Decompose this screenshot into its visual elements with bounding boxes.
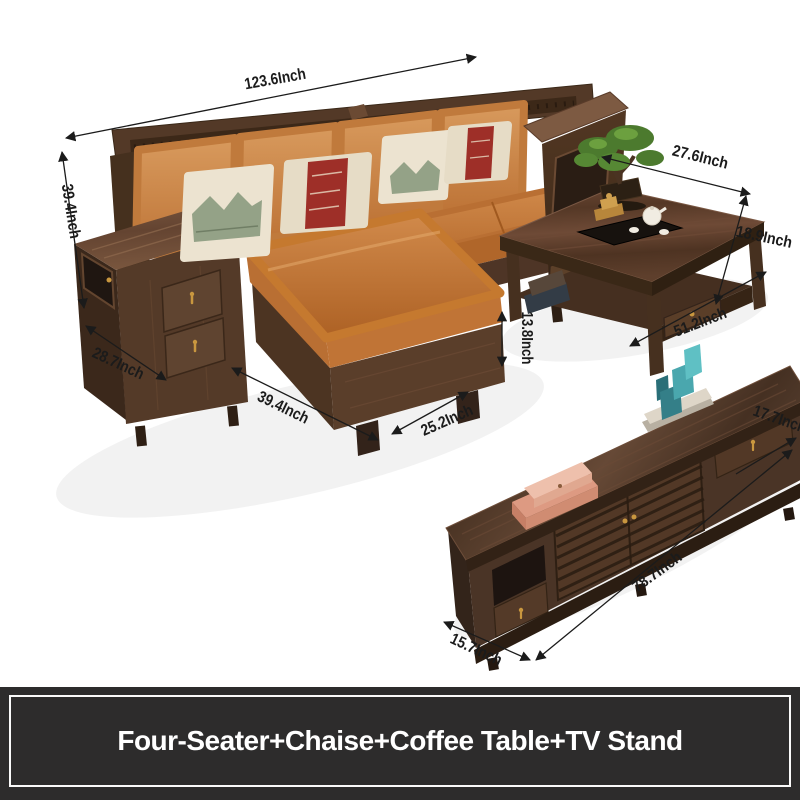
product-image: 123.6Inch 39.4Inch 28.7Inch 39.4Inch 25.… bbox=[0, 0, 800, 800]
tv-stand-foot bbox=[788, 508, 790, 520]
dim-label-shelf-clearance: 13.8Inch bbox=[518, 312, 535, 365]
teapot-lid bbox=[650, 206, 654, 210]
box-clasp bbox=[558, 484, 562, 488]
bonsai-foliage bbox=[574, 153, 598, 167]
gold-ornament-finial bbox=[606, 193, 612, 199]
dim-label-sofa-height: 39.4Inch bbox=[58, 183, 83, 240]
brass-handle bbox=[632, 515, 637, 520]
tea-cup bbox=[659, 229, 669, 235]
tea-cup bbox=[629, 227, 639, 233]
sofa-leg bbox=[140, 426, 142, 446]
bonsai-foliage bbox=[636, 150, 664, 166]
bonsai-foliage-highlight bbox=[589, 139, 607, 149]
sculpture-block bbox=[684, 344, 702, 380]
brass-stud bbox=[107, 278, 112, 283]
bonsai-foliage-highlight bbox=[614, 128, 638, 140]
product-caption: Four-Seater+Chaise+Coffee Table+TV Stand bbox=[117, 725, 682, 757]
caption-bar: Four-Seater+Chaise+Coffee Table+TV Stand bbox=[0, 687, 800, 800]
bonsai-foliage bbox=[598, 153, 630, 171]
pillow-red-band bbox=[465, 126, 494, 180]
brass-handle bbox=[623, 519, 628, 524]
dim-label-table-depth: 27.6Inch bbox=[670, 142, 729, 172]
dim-label-sofa-width: 123.6Inch bbox=[243, 66, 307, 94]
sofa bbox=[74, 84, 628, 456]
chaise-foot bbox=[356, 420, 380, 456]
product-illustration: 123.6Inch 39.4Inch 28.7Inch 39.4Inch 25.… bbox=[0, 0, 800, 800]
caption-frame: Four-Seater+Chaise+Coffee Table+TV Stand bbox=[9, 695, 791, 787]
sofa-leg bbox=[232, 406, 234, 426]
